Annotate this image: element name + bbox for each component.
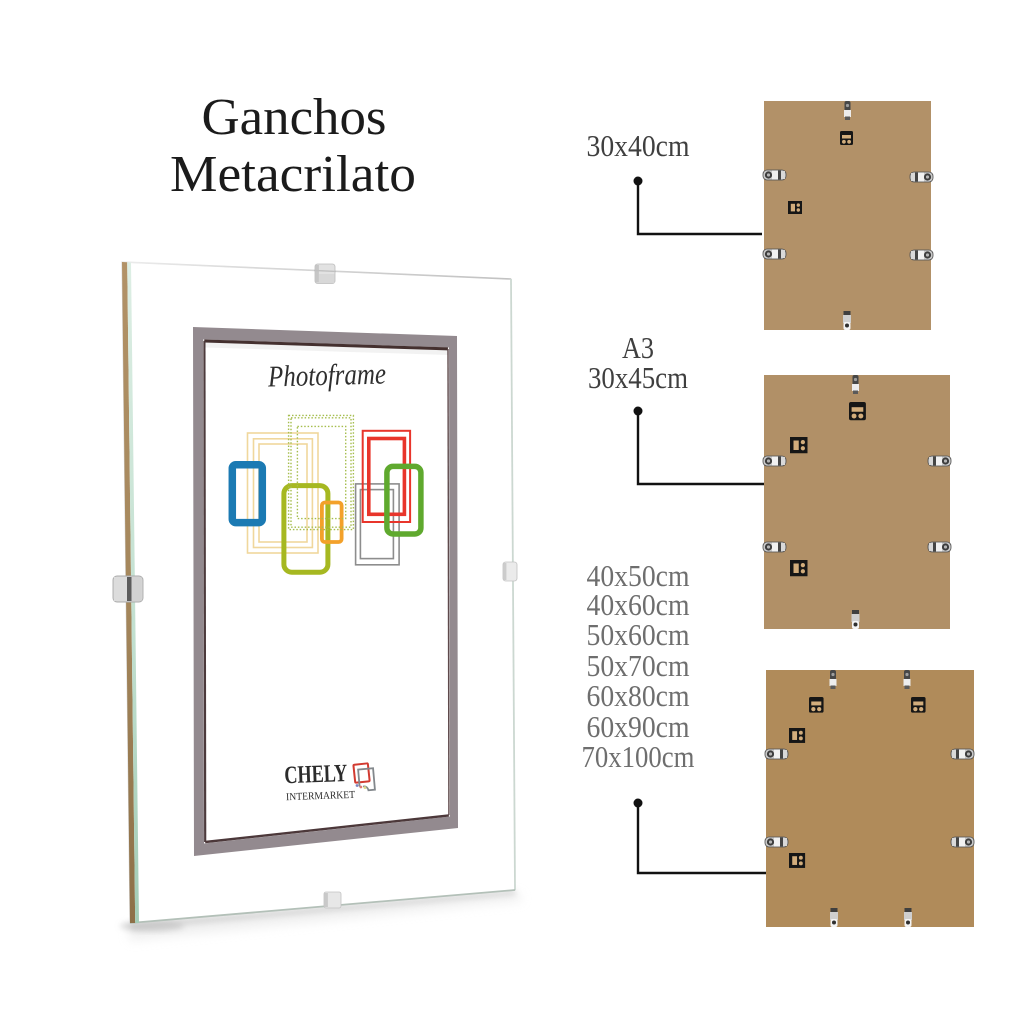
- svg-text:60x80cm: 60x80cm: [587, 678, 690, 713]
- svg-text:70x100cm: 70x100cm: [582, 739, 695, 774]
- svg-text:50x60cm: 50x60cm: [587, 617, 690, 652]
- svg-text:30x45cm: 30x45cm: [588, 360, 688, 395]
- svg-text:30x40cm: 30x40cm: [587, 128, 690, 163]
- svg-text:Metacrilato: Metacrilato: [170, 146, 416, 203]
- svg-text:Photoframe: Photoframe: [267, 357, 387, 393]
- svg-text:CHELY: CHELY: [284, 760, 348, 789]
- svg-text:Ganchos: Ganchos: [202, 89, 387, 146]
